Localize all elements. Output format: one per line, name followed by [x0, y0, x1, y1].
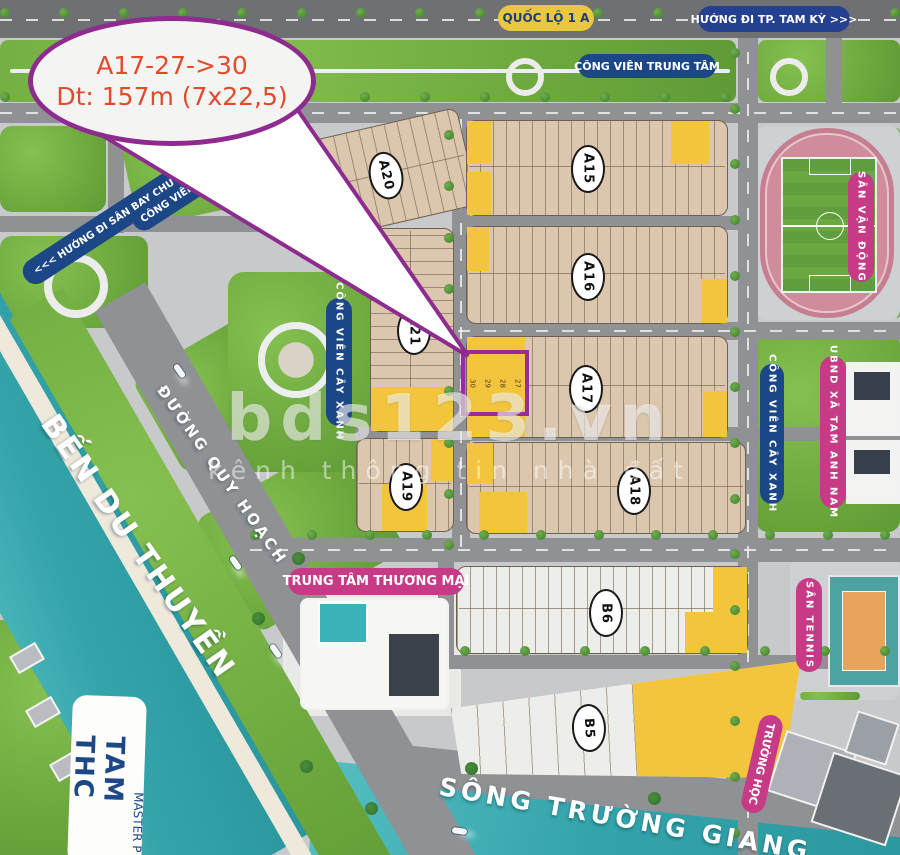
label-ubnd: UBND XÃ TAM ANH NAM: [820, 356, 846, 508]
lot-number: 30: [469, 379, 477, 388]
lawn: [0, 126, 106, 212]
label-trung-tam-thuong-mai: TRUNG TÂM THƯƠNG MẠI: [288, 568, 464, 595]
ubnd-building-2: [846, 440, 900, 504]
project-card-subtitle: MASTER P: [130, 792, 146, 853]
gazebo: [258, 322, 334, 398]
block-label: A17: [579, 373, 594, 404]
block-a15[interactable]: A15: [466, 120, 728, 216]
block-a21[interactable]: A21: [370, 228, 454, 432]
block-b6[interactable]: B6: [456, 566, 748, 654]
block-label: A15: [581, 153, 596, 184]
ubnd-building: [846, 362, 900, 436]
lot-number: 29: [484, 379, 492, 388]
road-vertical-topright: [826, 38, 842, 103]
pool: [318, 602, 368, 644]
callout-line2: Dt: 157m (7x22,5): [56, 83, 287, 111]
callout-bubble: A17-27->30 Dt: 157m (7x22,5): [28, 16, 316, 146]
highlighted-lot-outline[interactable]: 30 29 28 27: [461, 350, 529, 416]
block-label: A20: [375, 159, 397, 193]
tennis-court: [828, 575, 900, 687]
block-label: B6: [599, 603, 614, 624]
lot-number: 27: [514, 379, 522, 388]
callout-line1: A17-27->30: [96, 52, 248, 80]
block-label: A16: [581, 261, 596, 292]
master-plan-map: A20 A15 A16 A17 A21 A19 A18: [0, 0, 900, 855]
roundabout-small: [770, 58, 808, 96]
label-cong-vien-cay-xanh-left: CÔNG VIÊN CÂY XANH: [326, 298, 352, 426]
block-label: B5: [581, 717, 597, 739]
block-label: A18: [627, 475, 642, 506]
block-a18[interactable]: A18: [466, 442, 746, 534]
roundabout-small: [506, 58, 544, 96]
project-card-title: THC TAM: [65, 735, 130, 855]
lawn: [800, 692, 860, 700]
label-san-van-dong: SÂN VẬN ĐỘNG: [848, 172, 874, 282]
lot-number: 28: [499, 379, 507, 388]
label-quoc-lo-1a: QUỐC LỘ 1 A: [498, 5, 594, 31]
project-card: THC TAM MASTER P: [67, 695, 147, 855]
block-a16[interactable]: A16: [466, 226, 728, 324]
block-label: A19: [399, 471, 414, 502]
block-label: A21: [407, 315, 422, 346]
label-cong-vien-cay-xanh-right: CÔNG VIÊN CÂY XANH: [760, 364, 784, 504]
label-huong-di-tam-ky: HƯỚNG ĐI TP. TAM KỲ >>>: [698, 6, 850, 32]
block-a19[interactable]: A19: [356, 438, 454, 532]
block-a20[interactable]: A20: [281, 107, 479, 245]
label-san-tennis: SÂN TENNIS: [796, 578, 822, 672]
label-cong-vien-trung-tam: CÔNG VIÊN TRUNG TÂM: [578, 54, 716, 78]
